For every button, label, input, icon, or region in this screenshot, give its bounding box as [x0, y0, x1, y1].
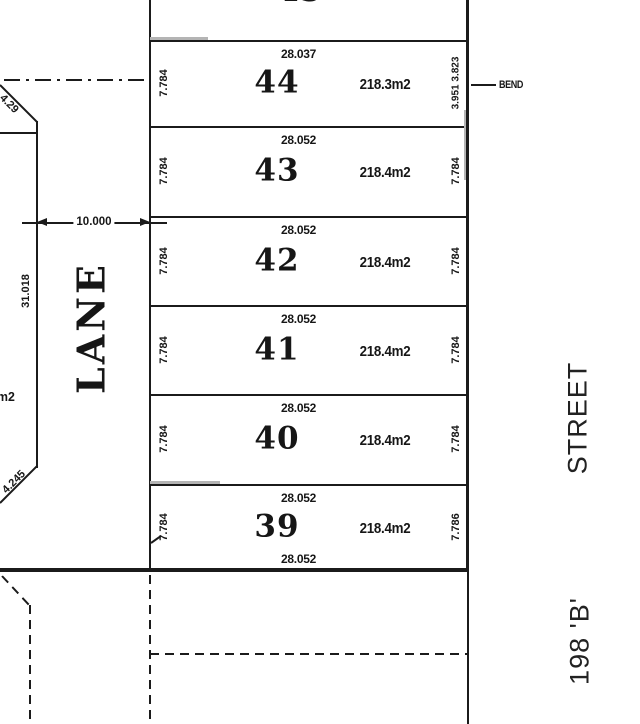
- lot-42: 28.052 42 218.4m2 7.784 7.784: [150, 216, 467, 305]
- lot-39-number: 39: [217, 508, 337, 544]
- road-centreline-dashdot: [4, 79, 150, 81]
- lot-43-top-dim: 28.052: [140, 133, 457, 147]
- lot-41: 28.052 41 218.4m2 7.784 7.784: [150, 305, 467, 394]
- lot-39-bottom-dim: 28.052: [140, 552, 457, 566]
- lot-41-top-dim: 28.052: [140, 312, 457, 326]
- lot-39: 28.052 39 218.4m2 7.784 7.786 28.052: [150, 484, 467, 570]
- lane-side-dimension-text: 31.018: [20, 274, 32, 308]
- lot-42-right-dim: 7.784: [450, 247, 462, 275]
- lot-42-area: 218.4m2: [334, 254, 435, 270]
- lot-40-top-dim: 28.052: [140, 401, 457, 415]
- lot-42-left-dim: 7.784: [158, 247, 170, 275]
- street-name-label: STREET: [563, 362, 594, 475]
- lot-40-right-dim: 7.784: [450, 425, 462, 453]
- lot-43-area: 218.4m2: [334, 165, 435, 181]
- lot-44-right-dim: 3.951 3.823: [451, 57, 462, 110]
- lot-43: 28.052 43 218.4m2 7.784 7.784: [150, 126, 467, 216]
- west-projection-dashed-line: [29, 605, 31, 724]
- lot-43-right-dim: 7.784: [450, 157, 462, 185]
- lot-44-area: 218.3m2: [334, 77, 435, 93]
- lot-41-right-dim: 7.784: [450, 336, 462, 364]
- splay-projection-dashed-line: [1, 575, 31, 607]
- lot-42-top-dim: 28.052: [140, 223, 457, 237]
- lot-44-top-dim: 28.037: [140, 47, 457, 61]
- lane-width-dimension-text: 10.000: [73, 216, 114, 228]
- west-block-boundary-line: [36, 121, 38, 468]
- lot-44: 28.037 44 218.3m2 7.784 3.951 3.823: [150, 40, 467, 126]
- lot-44-left-dim: 7.784: [158, 69, 170, 97]
- top-lot-number-clipped-wrapper: 45: [270, 0, 330, 7]
- dimension-arrow-left: [37, 218, 47, 226]
- west-block-internal-boundary-line: [0, 132, 37, 134]
- lot-41-left-dim: 7.784: [158, 336, 170, 364]
- chamfer-bottom-dimension-text: 4.245: [0, 468, 28, 496]
- lot-40-number: 40: [217, 420, 337, 456]
- lot-40-left-dim: 7.784: [158, 425, 170, 453]
- lot-40: 28.052 40 218.4m2 7.784 7.784: [150, 394, 467, 484]
- lot-39-right-dim: 7.786: [450, 513, 462, 541]
- bend-label: BEND: [499, 79, 523, 91]
- lot-44-number: 44: [217, 64, 337, 100]
- survey-plan-canvas: 10.000 31.018 LANE m2 4.29 4.245 45 9 9 …: [0, 0, 640, 724]
- lot-40-area: 218.4m2: [334, 433, 435, 449]
- street-number-label: 198 'B': [565, 597, 596, 685]
- lane-projection-dashed-line: [149, 575, 151, 724]
- lot-41-number: 41: [217, 331, 337, 367]
- west-lot-area-partial-text: m2: [0, 389, 15, 404]
- bend-leader-line: [471, 84, 496, 86]
- lot-43-number: 43: [217, 152, 337, 188]
- lot-39-area: 218.4m2: [334, 521, 435, 537]
- street-boundary-extension-line: [467, 571, 469, 724]
- lot-39-top-dim: 28.052: [140, 491, 457, 505]
- street-offset-dashed-line: [150, 653, 467, 655]
- lane-label: LANE: [69, 262, 114, 394]
- lot-41-area: 218.4m2: [334, 343, 435, 359]
- lot-42-number: 42: [217, 242, 337, 278]
- lot-43-left-dim: 7.784: [158, 157, 170, 185]
- top-lot-number-partial: 45: [270, 0, 330, 7]
